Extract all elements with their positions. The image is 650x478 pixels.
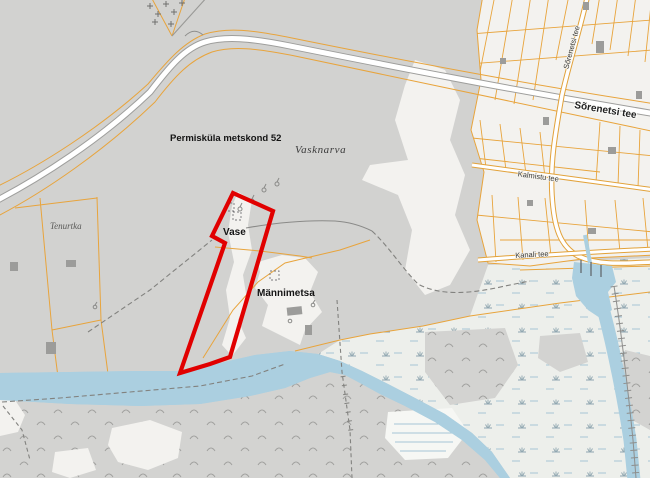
farmstead-label: Tenurtka	[50, 221, 82, 231]
parcel-mannimetsa-label: Männimetsa	[257, 288, 315, 299]
map-canvas[interactable]: Permisküla metskond 52 Vasknarva Vase Mä…	[0, 0, 650, 478]
forest-compartment-label: Permisküla metskond 52	[170, 133, 281, 144]
map-viewport[interactable]: Permisküla metskond 52 Vasknarva Vase Mä…	[0, 0, 650, 478]
parcel-vase-label: Vase	[223, 227, 246, 238]
village-name-label: Vasknarva	[295, 144, 346, 156]
village-area	[469, 0, 650, 266]
road-kanali-label: Kanali tee	[515, 249, 549, 260]
